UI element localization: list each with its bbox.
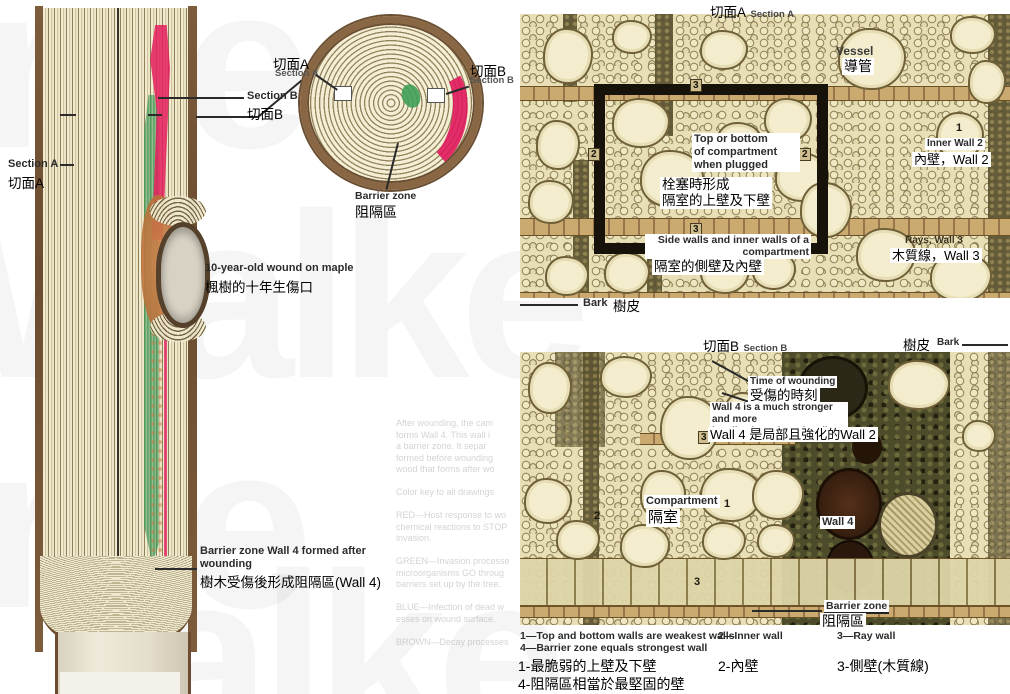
hatched-blob [878, 492, 938, 558]
bark-label-a-zh: 樹皮 [613, 295, 640, 315]
plug-label-zh: 栓塞時形成 隔室的上壁及下壁 [660, 177, 772, 209]
diagram-page: ree Walke ree alke After wounding, the c… [0, 0, 1010, 694]
plug-label-en3: when plugged [694, 159, 798, 172]
side-walls-en2: compartment [647, 246, 809, 258]
bracket-chip-left: 2 [588, 148, 600, 161]
bark-label-a-en: Bark [583, 297, 607, 309]
legend-en-4: 4—Barrier zone equals strongest wall [520, 642, 707, 654]
legend-zh-2: 2-內壁 [718, 656, 758, 676]
barrier-pointer [155, 568, 197, 570]
trunk-barrier-label-en1: Barrier zone Wall 4 formed after [200, 545, 366, 557]
plug-label-en1: Top or bottom [694, 133, 798, 146]
disc-section-a-en: Section A [275, 68, 318, 79]
vessel [528, 362, 572, 414]
vessel [962, 420, 996, 452]
trunk-section-a-label-en: Section A [8, 158, 58, 170]
ghost-paragraph: After wounding, the cam forms Wall 4. Th… [396, 418, 526, 648]
barrier-zone-pointer [752, 610, 822, 612]
disc-barrier-en: Barrier zone [355, 190, 416, 202]
wound-hole [156, 222, 210, 328]
compartment-label-en: Compartment [644, 495, 720, 508]
wall4-note-zh: Wall 4 是局部且強化的Wall 2 [708, 427, 878, 442]
vessel [612, 20, 652, 54]
side-walls-label-en: Side walls and inner walls of a compartm… [645, 234, 811, 259]
panel-a-title-zh: 切面A [710, 5, 746, 20]
wound-grain-top [150, 196, 206, 226]
legend-en-1: 1—Top and bottom walls are weakest walls [520, 630, 735, 642]
vessel-label-zh: 導管 [842, 58, 874, 75]
plug-label-en2: of compartment [694, 146, 798, 159]
inner-wall-label-en: Inner Wall 2 [925, 138, 985, 150]
compartment-label-zh: 隔室 [646, 509, 680, 527]
orange-speckles [150, 330, 162, 560]
plug-label-en: Top or bottom of compartment when plugge… [692, 133, 800, 172]
plug-label-zh1: 栓塞時形成 [662, 177, 770, 193]
vessel [700, 30, 748, 70]
time-of-wounding-en: Time of wounding [748, 376, 837, 388]
trunk-section-b-label-zh: 切面B [247, 103, 283, 123]
rays-label-en: Rays, Wall 3 [905, 235, 963, 246]
ray-band [520, 606, 1010, 618]
vessel [556, 520, 600, 560]
panel-b-title-en: Section B [743, 343, 787, 354]
bark-pointer-b [962, 344, 1008, 346]
barrier-zone-band [520, 558, 1010, 606]
vessel [620, 524, 670, 568]
bracket-chip-top: 3 [690, 79, 702, 92]
bracket-chip-right: 2 [799, 148, 811, 161]
vessel [600, 356, 652, 398]
trunk-stump-base [60, 672, 180, 694]
vessel [543, 28, 593, 84]
number-3: 3 [694, 576, 700, 588]
vessel [757, 524, 795, 558]
panel-a-title-en: Section A [750, 9, 793, 20]
number-1: 1 [724, 498, 730, 510]
side-walls-en1: Side walls and inner walls of a [647, 234, 809, 246]
disc-section-b-marker [427, 88, 445, 103]
bark-label-b-en: Bark [937, 337, 959, 348]
plug-label-zh2: 隔室的上壁及下壁 [662, 193, 770, 209]
trunk-section-a-label-zh: 切面A [8, 172, 44, 192]
vessel [545, 256, 589, 296]
vessel [702, 522, 746, 560]
legend-en-3: 3—Ray wall [837, 630, 895, 642]
panel-b-title: 切面B Section B [703, 335, 787, 356]
legend-zh-4: 4-阻隔區相當於最堅固的壁 [518, 674, 684, 694]
vessel [536, 120, 580, 170]
bark-pointer-a [520, 304, 578, 306]
section-a-pointer [60, 164, 74, 166]
rays-label-zh: 木質線，Wall 3 [890, 248, 982, 263]
legend-en-2: 2—Inner wall [718, 630, 783, 642]
vessel [528, 180, 574, 224]
inner-wall-label-zh: 內壁，Wall 2 [912, 152, 991, 167]
decay-blob [816, 468, 882, 540]
trunk-section-b-label-en: Section B [247, 90, 298, 102]
vessel [752, 470, 804, 520]
panel-b-title-zh: 切面B [703, 339, 739, 354]
wound-label-zh: 楓樹的十年生傷口 [205, 276, 313, 296]
trunk-center-line [117, 8, 119, 593]
wall4-note-en1: Wall 4 is a much stronger and more [712, 402, 846, 426]
wound-label-en: 10-year-old wound on maple [205, 262, 354, 274]
legend-zh-3: 3-側壁(木質線) [837, 656, 929, 676]
number-1: 1 [956, 122, 962, 134]
vessel [604, 252, 650, 294]
trunk-barrier-label-en2: wounding [200, 558, 252, 570]
vessel [968, 60, 1006, 104]
disc-section-b-en: Section B [470, 75, 514, 86]
wall4-label: Wall 4 [820, 516, 855, 529]
side-walls-label-zh: 隔室的側壁及內壁 [652, 259, 764, 275]
vessel [888, 360, 950, 410]
section-tick [60, 114, 76, 116]
wall-band [988, 14, 1010, 298]
barrier-zone-label-zh: 阻隔區 [820, 613, 866, 630]
disc-barrier-zh: 阻隔區 [355, 202, 397, 222]
section-tick [148, 114, 162, 116]
bark-label-b-zh: 樹皮 [903, 334, 930, 354]
vessel [524, 478, 572, 524]
legend-zh-1: 1-最脆弱的上壁及下壁 [518, 656, 656, 676]
vessel-label-en: Vessel [836, 44, 873, 58]
number-2: 2 [594, 510, 600, 522]
vessel [950, 16, 996, 54]
trunk-barrier-label-zh: 樹木受傷後形成阻隔區(Wall 4) [200, 571, 381, 591]
section-b-pointer [158, 97, 244, 99]
panel-a-title: 切面A Section A [710, 1, 794, 22]
